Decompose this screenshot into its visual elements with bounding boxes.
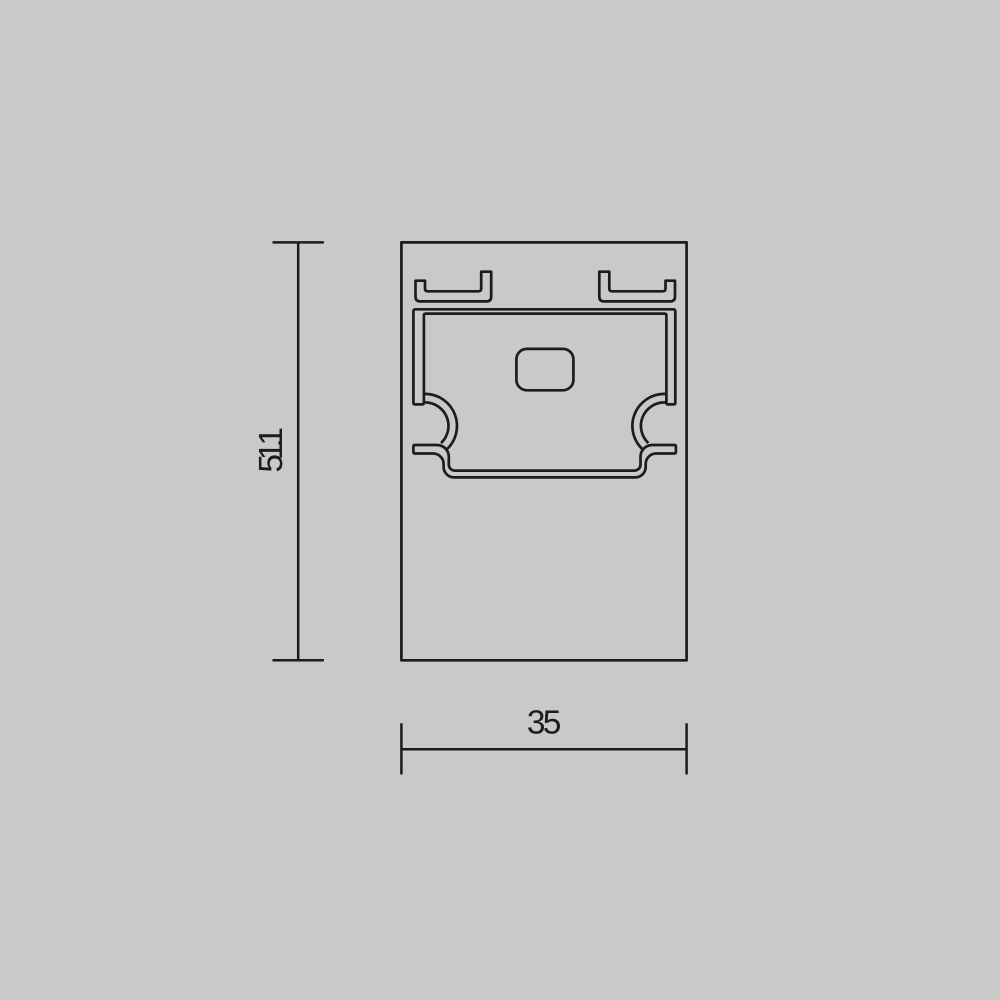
svg-text:35: 35: [527, 704, 561, 741]
svg-text:51.1: 51.1: [253, 427, 290, 473]
